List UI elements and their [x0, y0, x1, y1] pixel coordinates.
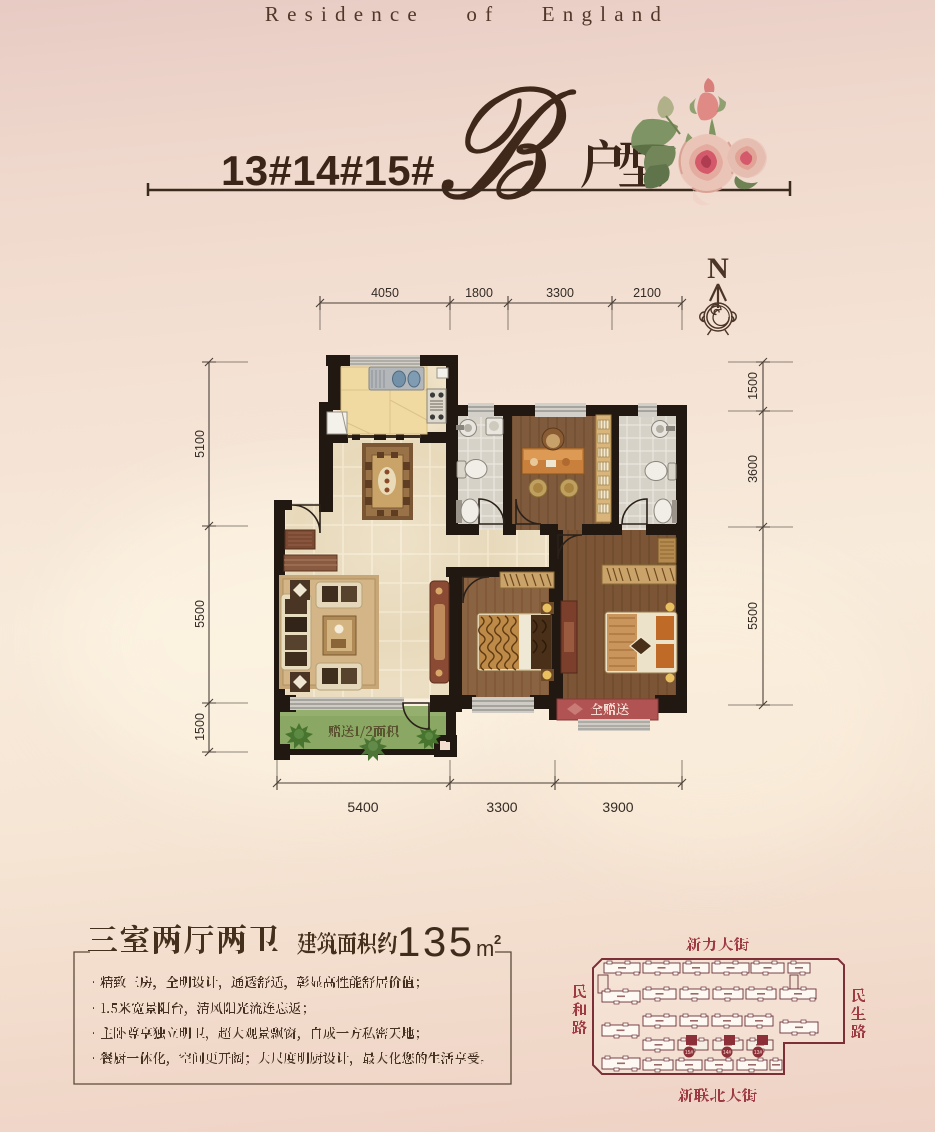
svg-text:2: 2 — [494, 932, 501, 947]
svg-text:15#: 15# — [685, 1050, 694, 1056]
svg-text:14#: 14# — [723, 1050, 732, 1056]
svg-text:135: 135 — [397, 918, 475, 965]
svg-text:m: m — [476, 936, 494, 961]
svg-text:13#: 13# — [754, 1050, 763, 1056]
